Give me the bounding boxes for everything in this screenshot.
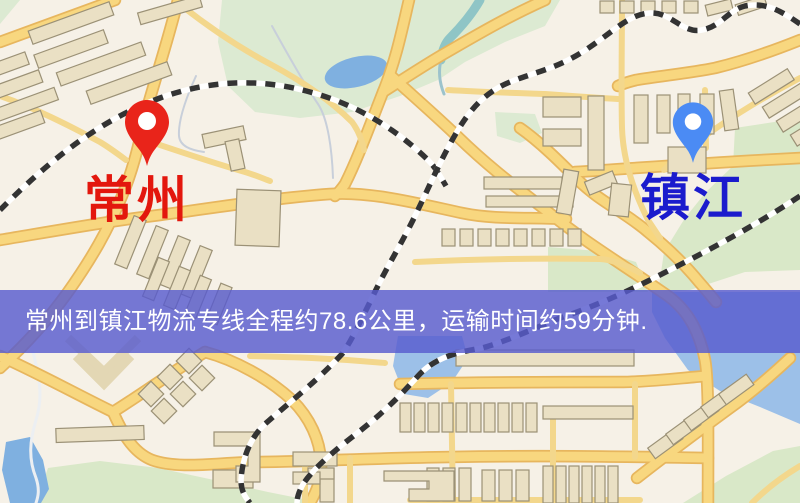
route-info-text: 常州到镇江物流专线全程约78.6公里，运输时间约59分钟. [25,308,648,335]
destination-city-label: 镇江 [640,173,746,223]
map-viewport: 常州 镇江 常州到镇江物流专线全程约78.6公里，运输时间约59分钟. [0,0,800,503]
blue-map-pin-icon [671,100,715,167]
red-map-pin-icon [123,98,171,170]
origin-pin[interactable] [123,98,171,170]
destination-pin[interactable] [671,100,715,167]
origin-city-label: 常州 [84,175,190,225]
route-info-banner: 常州到镇江物流专线全程约78.6公里，运输时间约59分钟. [0,290,800,353]
map-canvas[interactable] [0,0,800,503]
